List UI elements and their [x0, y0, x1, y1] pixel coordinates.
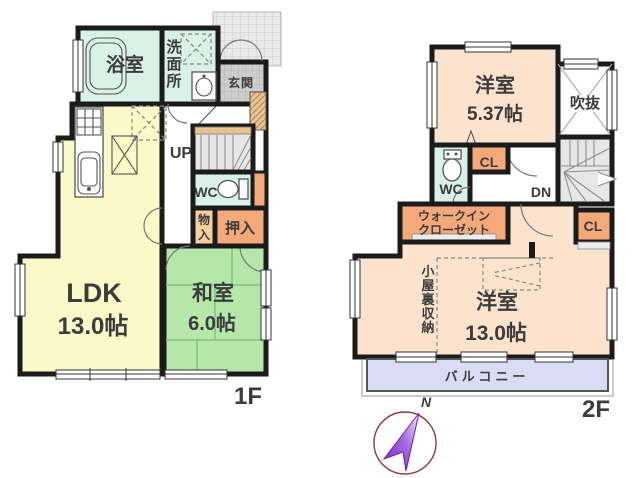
washroom-label: 洗 面 所 — [166, 38, 181, 90]
stairs-1f — [193, 126, 253, 172]
vanity-sink-icon — [192, 72, 216, 100]
svg-text:所: 所 — [166, 73, 181, 90]
bathroom-label: 浴室 — [106, 53, 144, 76]
bedroom-small-label: 洋室 — [475, 73, 515, 97]
wc-1f-label: WC — [194, 184, 217, 200]
floorplan-svg: 浴室 洗 面 所 玄関 UP WC 物 入 押入 LDK 13.0帖 和室 6.… — [0, 0, 640, 478]
stairs-down-label: DN — [531, 184, 551, 200]
stairs-up-label: UP — [170, 145, 193, 162]
bedroom-large-size-label: 13.0帖 — [465, 322, 527, 345]
pipe-space — [253, 172, 266, 208]
north-label: N — [421, 394, 432, 410]
ldk-label: LDK — [66, 278, 122, 308]
floor1-label: 1F — [234, 383, 262, 410]
attic-storage-label: 小 屋 裏 収 納 — [420, 264, 435, 335]
svg-text:収: 収 — [421, 306, 435, 321]
wic-label-line1: ウォークイン — [418, 209, 490, 223]
washitsu-label: 和室 — [192, 281, 234, 305]
svg-text:納: 納 — [421, 320, 434, 335]
closet-right-label: CL — [584, 218, 603, 234]
stair-handrail — [195, 127, 251, 134]
oshiire-label: 押入 — [225, 219, 255, 237]
floorplan-image: 浴室 洗 面 所 玄関 UP WC 物 入 押入 LDK 13.0帖 和室 6.… — [0, 0, 640, 478]
wic-label-line2: クローゼット — [418, 222, 490, 237]
bedroom-small-size-label: 5.37帖 — [467, 102, 523, 125]
ldk-size-label: 13.0帖 — [58, 313, 129, 340]
svg-text:洗: 洗 — [166, 38, 181, 56]
svg-text:小: 小 — [421, 264, 434, 279]
toilet-icon — [443, 150, 461, 181]
wc-2f-label: WC — [439, 181, 462, 197]
bedroom-large-label: 洋室 — [476, 290, 518, 314]
svg-text:物: 物 — [198, 212, 210, 227]
svg-text:屋: 屋 — [421, 278, 434, 293]
washitsu-size-label: 6.0帖 — [188, 312, 236, 335]
svg-text:面: 面 — [166, 56, 181, 73]
floor2-label: 2F — [582, 396, 610, 423]
closet-right-door-strip — [578, 242, 610, 249]
wall-stub — [529, 242, 535, 258]
closet-upper-label: CL — [480, 154, 499, 170]
entrance-porch — [213, 12, 281, 66]
toilet-icon — [218, 179, 248, 199]
balcony-label: バルコニー — [445, 369, 530, 384]
kitchen-counter — [75, 107, 103, 197]
entrance-label: 玄関 — [228, 75, 254, 90]
stairs-2f — [558, 137, 616, 204]
svg-text:裏: 裏 — [420, 292, 435, 307]
svg-text:入: 入 — [198, 228, 210, 242]
void-label: 吹抜 — [570, 94, 601, 112]
